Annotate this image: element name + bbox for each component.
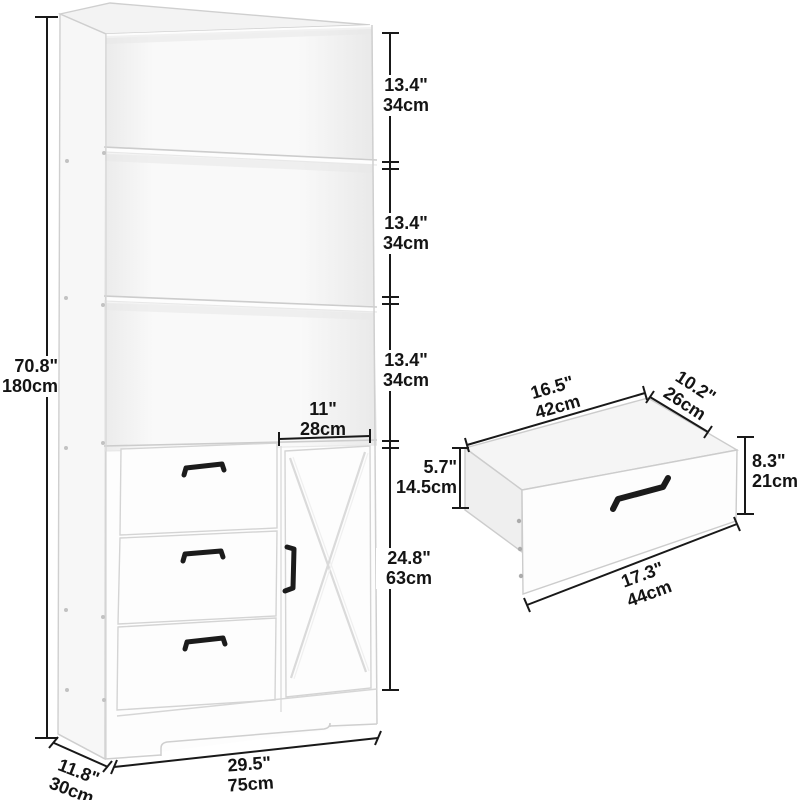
furniture-dimension-diagram: 70.8" 180cm 13.4" 34cm 13.4" 34cm 13.4" … xyxy=(0,0,800,800)
dim-tick xyxy=(103,761,112,772)
shelf-section-1-in: 13.4" xyxy=(377,76,435,96)
shelf-compartment-1 xyxy=(105,29,373,159)
pin-hole-dot xyxy=(64,446,68,450)
drawer-front-height-in: 8.3" xyxy=(752,452,800,472)
shelf-section-2-in: 13.4" xyxy=(377,214,435,234)
shelf-compartment-2 xyxy=(104,154,374,306)
drawer-detail-illustration xyxy=(465,398,737,594)
pin-hole-dot xyxy=(102,698,106,702)
width-label: 29.5" 75cm xyxy=(199,752,301,798)
drawer-front-2 xyxy=(118,531,277,624)
lower-section-height-cm: 63cm xyxy=(376,569,442,589)
cabinet-illustration xyxy=(58,3,377,759)
pin-hole-dot xyxy=(101,303,105,307)
pin-hole-dot xyxy=(101,615,105,619)
overall-height-in: 70.8" xyxy=(0,357,58,377)
pin-hole-dot xyxy=(64,608,68,612)
pin-hole-dot xyxy=(64,296,68,300)
drawer-hole-dot xyxy=(518,547,522,551)
door-width-label: 11" 28cm xyxy=(292,400,354,439)
shelf-section-3-in: 13.4" xyxy=(377,351,435,371)
pin-hole-dot xyxy=(101,441,105,445)
drawer-side-height-cm: 14.5cm xyxy=(357,478,457,498)
lower-section-height-label: 24.8" 63cm xyxy=(376,548,442,589)
drawer-side-height-label: 5.7" 14.5cm xyxy=(357,458,457,497)
drawer-hole-dot xyxy=(519,574,523,578)
pin-hole-dot xyxy=(102,151,106,155)
overall-height-cm: 180cm xyxy=(0,377,58,397)
shelf-section-2-label: 13.4" 34cm xyxy=(377,213,435,254)
cabinet-side-panel xyxy=(58,14,106,759)
door-width-in: 11" xyxy=(292,400,354,420)
lower-section-height-in: 24.8" xyxy=(376,549,442,569)
drawer-front-height-label: 8.3" 21cm xyxy=(752,452,800,491)
drawer-side-height-in: 5.7" xyxy=(357,458,457,478)
shelf-section-2-cm: 34cm xyxy=(377,234,435,254)
shelf-section-3-label: 13.4" 34cm xyxy=(377,350,435,391)
drawer-front-height-cm: 21cm xyxy=(752,472,800,492)
overall-height-label: 70.8" 180cm xyxy=(0,356,58,397)
shelf-section-3-cm: 34cm xyxy=(377,371,435,391)
pin-hole-dot xyxy=(65,159,69,163)
door-width-cm: 28cm xyxy=(292,420,354,440)
drawer-front-3 xyxy=(117,618,276,710)
drawer-front-1 xyxy=(120,443,277,535)
drawer-hole-dot xyxy=(517,519,521,523)
shelf-section-1-label: 13.4" 34cm xyxy=(377,75,435,116)
pin-hole-dot xyxy=(65,688,69,692)
shelf-section-1-cm: 34cm xyxy=(377,96,435,116)
